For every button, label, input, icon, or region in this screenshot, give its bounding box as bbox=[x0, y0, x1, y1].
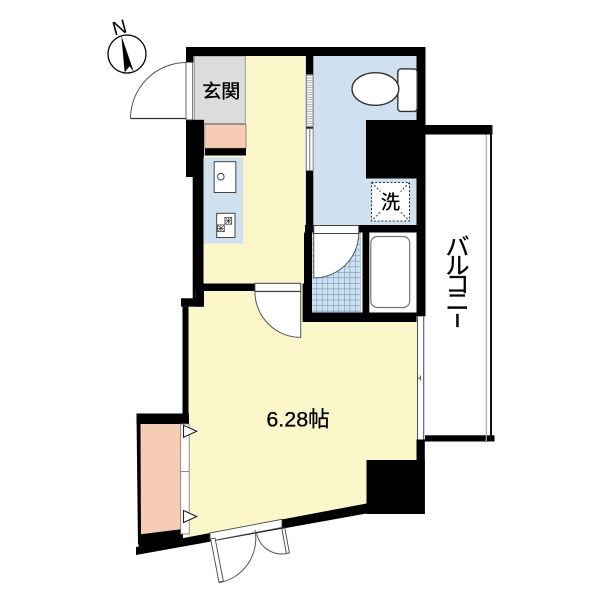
svg-text:6.28帖: 6.28帖 bbox=[266, 408, 329, 432]
svg-text:玄関: 玄関 bbox=[202, 80, 240, 102]
svg-text:ニ: ニ bbox=[446, 289, 470, 316]
svg-text:洗: 洗 bbox=[381, 192, 400, 214]
